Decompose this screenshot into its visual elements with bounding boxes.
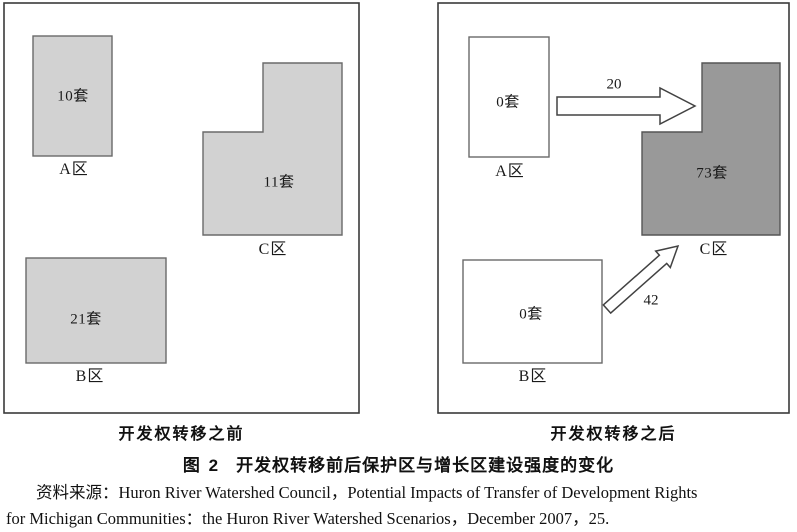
zone-a-after-units: 0套 (496, 96, 520, 111)
transfer-b-to-c-amount: 42 (644, 294, 659, 309)
figure-title: 开发权转移前后保护区与增长区建设强度的变化 (236, 456, 614, 475)
panel-after-caption: 开发权转移之后 (438, 420, 789, 444)
zone-b-before-shape (26, 258, 166, 363)
source-line-1: 资料来源：Huron River Watershed Council，Poten… (6, 480, 794, 506)
zone-a-before-label: A区 (59, 162, 89, 178)
source-line-2: for Michigan Communities：the Huron River… (6, 506, 794, 532)
zone-b-after-label: B区 (519, 369, 548, 385)
zone-a-after-label: A区 (495, 164, 525, 180)
zone-c-before-shape (203, 63, 342, 235)
transfer-arrow-b-to-c (603, 246, 678, 313)
figure-number: 图 2 (183, 456, 220, 475)
tdr-diagram (0, 0, 797, 445)
zone-b-before-label: B区 (76, 369, 105, 385)
figure-page: 10套 A区 11套 C区 21套 B区 开发权转移之前 0套 A区 20 73… (0, 0, 797, 532)
zone-a-before-units: 10套 (57, 90, 89, 105)
transfer-a-to-c-amount: 20 (607, 78, 622, 93)
panel-before-caption: 开发权转移之前 (4, 420, 359, 444)
zone-c-after-label: C区 (700, 242, 729, 258)
transfer-arrow-a-to-c (557, 88, 695, 124)
zone-b-before-units: 21套 (70, 313, 102, 328)
zone-b-after-units: 0套 (519, 308, 543, 323)
zone-c-before-units: 11套 (264, 176, 295, 191)
zone-c-after-units: 73套 (696, 167, 728, 182)
zone-c-before-label: C区 (259, 242, 288, 258)
figure-caption: 图 2开发权转移前后保护区与增长区建设强度的变化 (0, 451, 797, 476)
source-citation: 资料来源：Huron River Watershed Council，Poten… (6, 480, 794, 532)
